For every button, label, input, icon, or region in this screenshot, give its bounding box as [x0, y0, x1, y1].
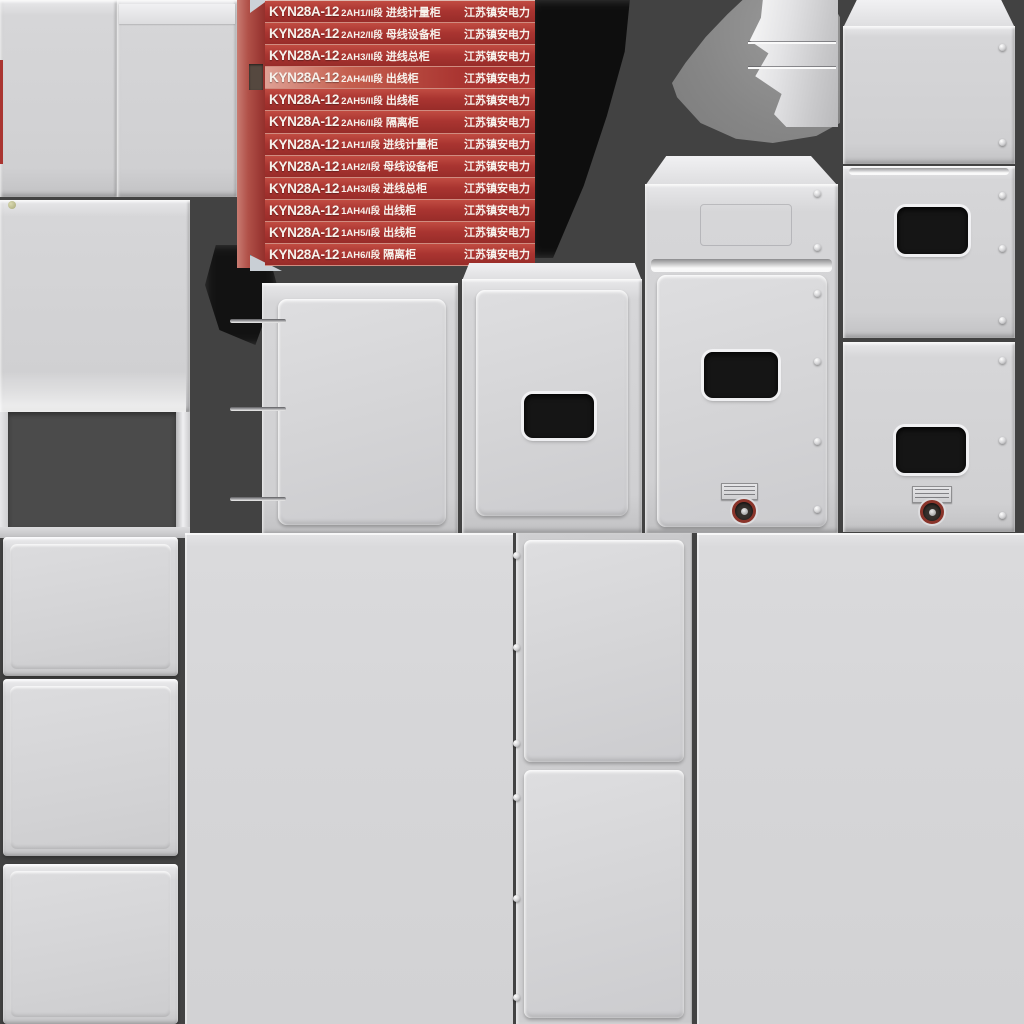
door-panel-c-face	[278, 299, 446, 525]
label-row: KYN28A-122AH2/II段母线设备柜江苏镇安电力	[265, 23, 535, 45]
inspection-window	[704, 352, 778, 398]
rivet	[814, 358, 821, 365]
label-company: 江苏镇安电力	[464, 246, 530, 262]
baked-shadow-right-of-labels	[530, 0, 658, 258]
label-code: 1AH2/I段	[341, 159, 380, 173]
label-cabinet-name: 进线总柜	[383, 180, 427, 196]
label-block-side-strip	[237, 0, 265, 268]
roof-panel-right	[117, 0, 237, 197]
label-row: KYN28A-121AH2/I段母线设备柜江苏镇安电力	[265, 156, 535, 178]
label-model: KYN28A-12	[269, 137, 339, 152]
rivet	[999, 357, 1006, 364]
rivet	[513, 740, 520, 747]
label-company: 江苏镇安电力	[464, 180, 530, 196]
cabinet-e-blind-outline	[700, 204, 792, 246]
label-cabinet-name: 进线总柜	[386, 48, 430, 64]
frame-opening-interior	[8, 412, 176, 527]
label-row: KYN28A-121AH6/I段隔离柜江苏镇安电力	[265, 244, 535, 266]
label-model: KYN28A-12	[269, 181, 339, 196]
label-model: KYN28A-12	[269, 70, 339, 85]
rear-panel-3-face	[10, 871, 171, 1017]
rivet	[513, 794, 520, 801]
rear-frame-door-top	[524, 540, 684, 762]
rivet	[513, 895, 520, 902]
rivet	[513, 644, 520, 651]
label-code: 2AH2/II段	[341, 27, 383, 41]
side-sheet-bottom-glow	[0, 372, 186, 412]
label-model: KYN28A-12	[269, 4, 339, 19]
rear-panel-1-face	[10, 544, 171, 669]
label-cabinet-name: 出线柜	[383, 224, 416, 240]
label-row: KYN28A-122AH3/II段进线总柜江苏镇安电力	[265, 45, 535, 67]
label-model: KYN28A-12	[269, 203, 339, 218]
label-code: 2AH3/II段	[341, 49, 383, 63]
rear-panel-2-face	[10, 686, 171, 849]
label-block-side-recess	[249, 64, 263, 90]
roof-panel-right-top-bevel	[119, 4, 235, 24]
rivet	[999, 44, 1006, 51]
label-code: 2AH5/II段	[341, 93, 383, 107]
inspection-window	[897, 207, 968, 254]
rivet	[814, 190, 821, 197]
label-row: KYN28A-121AH4/I段出线柜江苏镇安电力	[265, 200, 535, 222]
door-lock	[732, 499, 756, 523]
label-cabinet-name: 出线柜	[386, 70, 419, 86]
label-company: 江苏镇安电力	[464, 26, 530, 42]
label-model: KYN28A-12	[269, 48, 339, 63]
rivet	[999, 512, 1006, 519]
label-row: KYN28A-122AH1/II段进线计量柜江苏镇安电力	[265, 1, 535, 23]
cabinet-r1-top-bevel	[843, 0, 1015, 28]
texture-atlas-switchgear: KYN28A-122AH1/II段进线计量柜江苏镇安电力 KYN28A-122A…	[0, 0, 1024, 1024]
label-model: KYN28A-12	[269, 225, 339, 240]
label-code: 1AH6/I段	[341, 247, 380, 261]
hinge-pin	[230, 497, 286, 501]
cabinet-r1-body	[843, 26, 1015, 164]
label-code: 1AH5/I段	[341, 225, 380, 239]
door-lock	[920, 500, 944, 524]
rivet	[999, 437, 1006, 444]
label-model: KYN28A-12	[269, 247, 339, 262]
rivet	[814, 244, 821, 251]
label-row: KYN28A-122AH4/II段出线柜江苏镇安电力	[265, 67, 535, 89]
label-company: 江苏镇安电力	[464, 70, 530, 86]
label-company: 江苏镇安电力	[464, 158, 530, 174]
hinge-pin	[230, 407, 286, 411]
rivet	[814, 290, 821, 297]
rivet	[814, 506, 821, 513]
label-cabinet-name: 母线设备柜	[386, 26, 441, 42]
rear-frame-door-bottom	[524, 770, 684, 1018]
label-model: KYN28A-12	[269, 114, 339, 129]
cabinet-r2-groove	[849, 168, 1009, 175]
cabinet-e-divider-groove	[651, 259, 832, 272]
rivet	[999, 139, 1006, 146]
label-company: 江苏镇安电力	[464, 202, 530, 218]
label-company: 江苏镇安电力	[464, 4, 530, 20]
inspection-window	[524, 394, 594, 438]
handle-seam-line	[748, 42, 836, 44]
rivet	[999, 245, 1006, 252]
label-company: 江苏镇安电力	[464, 224, 530, 240]
red-edge-sliver	[0, 60, 3, 164]
label-cabinet-name: 母线设备柜	[383, 158, 438, 174]
label-company: 江苏镇安电力	[464, 136, 530, 152]
label-cabinet-name: 隔离柜	[383, 246, 416, 262]
handle-seam-line	[748, 67, 836, 69]
rivet	[999, 192, 1006, 199]
rear-panel-2	[3, 679, 178, 856]
label-code: 2AH6/II段	[341, 115, 383, 129]
rivet	[999, 317, 1006, 324]
label-row: KYN28A-121AH3/I段进线总柜江苏镇安电力	[265, 178, 535, 200]
side-sheet-large-left	[185, 533, 513, 1024]
label-model: KYN28A-12	[269, 92, 339, 107]
cabinet-label-list: KYN28A-122AH1/II段进线计量柜江苏镇安电力 KYN28A-122A…	[265, 0, 535, 266]
label-company: 江苏镇安电力	[464, 48, 530, 64]
label-model: KYN28A-12	[269, 159, 339, 174]
nameplate	[721, 483, 758, 500]
label-row: KYN28A-122AH5/II段出线柜江苏镇安电力	[265, 89, 535, 111]
label-row: KYN28A-121AH5/I段出线柜江苏镇安电力	[265, 222, 535, 244]
rivet	[513, 552, 520, 559]
rear-panel-3	[3, 864, 178, 1024]
cabinet-e-top-bevel	[645, 156, 838, 186]
label-model: KYN28A-12	[269, 26, 339, 41]
label-code: 1AH3/I段	[341, 181, 380, 195]
label-cabinet-name: 出线柜	[386, 92, 419, 108]
label-company: 江苏镇安电力	[464, 92, 530, 108]
label-cabinet-name: 进线计量柜	[386, 4, 441, 20]
label-code: 2AH1/II段	[341, 5, 383, 19]
label-cabinet-name: 进线计量柜	[383, 136, 438, 152]
label-code: 2AH4/II段	[341, 71, 383, 85]
label-company: 江苏镇安电力	[464, 114, 530, 130]
hinge-pin	[230, 319, 286, 323]
label-cabinet-name: 隔离柜	[386, 114, 419, 130]
side-sheet-large-right	[697, 533, 1024, 1024]
frame-left-rail	[0, 412, 8, 538]
label-row: KYN28A-121AH1/I段进线计量柜江苏镇安电力	[265, 134, 535, 156]
label-cabinet-name: 出线柜	[383, 202, 416, 218]
grommet-dot	[8, 201, 16, 209]
label-code: 1AH1/I段	[341, 137, 380, 151]
roof-panel-left	[0, 0, 117, 197]
rivet	[814, 438, 821, 445]
rivet	[513, 994, 520, 1001]
frame-right-rail	[176, 412, 190, 538]
inspection-window	[896, 427, 966, 473]
label-code: 1AH4/I段	[341, 203, 380, 217]
label-row: KYN28A-122AH6/II段隔离柜江苏镇安电力	[265, 111, 535, 133]
rear-panel-1	[3, 537, 178, 676]
